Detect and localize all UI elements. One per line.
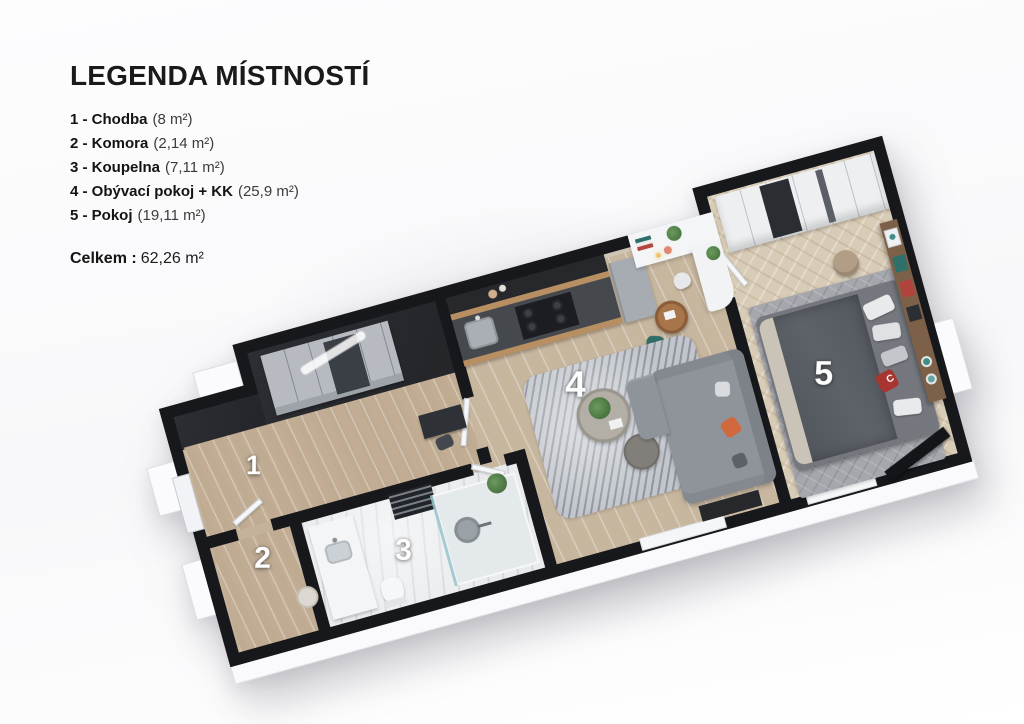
legend-room-item-2: 2 - Komora(2,14 m²) [70,132,369,156]
legend-room-label: 4 - Obývací pokoj + KK [70,183,233,200]
room-label-3: 3 [395,534,412,568]
legend-room-list: 1 - Chodba(8 m²) 2 - Komora(2,14 m²) 3 -… [70,108,369,228]
bed-pillow [893,397,923,416]
legend-room-area: (7,11 m²) [165,159,225,176]
room-label-5: 5 [814,355,833,394]
legend: LEGENDA MÍSTNOSTÍ 1 - Chodba(8 m²) 2 - K… [70,60,369,268]
legend-room-area: (8 m²) [153,111,193,128]
legend-room-item-1: 1 - Chodba(8 m²) [70,108,369,132]
legend-room-item-3: 3 - Koupelna(7,11 m²) [70,156,369,180]
legend-total: Celkem :62,26 m² [70,250,369,268]
legend-room-area: (25,9 m²) [238,183,299,200]
legend-total-value: 62,26 m² [141,250,204,267]
room-label-2: 2 [254,542,271,576]
sofa-pillow-white [715,381,730,396]
page-canvas: LEGENDA MÍSTNOSTÍ 1 - Chodba(8 m²) 2 - K… [0,0,1024,724]
legend-title: LEGENDA MÍSTNOSTÍ [70,60,369,92]
room-label-4: 4 [565,364,586,406]
legend-room-area: (2,14 m²) [153,135,214,152]
room-label-1: 1 [246,450,261,481]
legend-room-area: (19,11 m²) [138,207,206,224]
legend-room-label: 5 - Pokoj [70,207,133,224]
legend-room-label: 1 - Chodba [70,111,148,128]
legend-total-label: Celkem : [70,250,137,267]
legend-room-label: 3 - Koupelna [70,159,160,176]
legend-room-item-5: 5 - Pokoj(19,11 m²) [70,204,369,228]
legend-room-item-4: 4 - Obývací pokoj + KK(25,9 m²) [70,180,369,204]
legend-room-label: 2 - Komora [70,135,148,152]
